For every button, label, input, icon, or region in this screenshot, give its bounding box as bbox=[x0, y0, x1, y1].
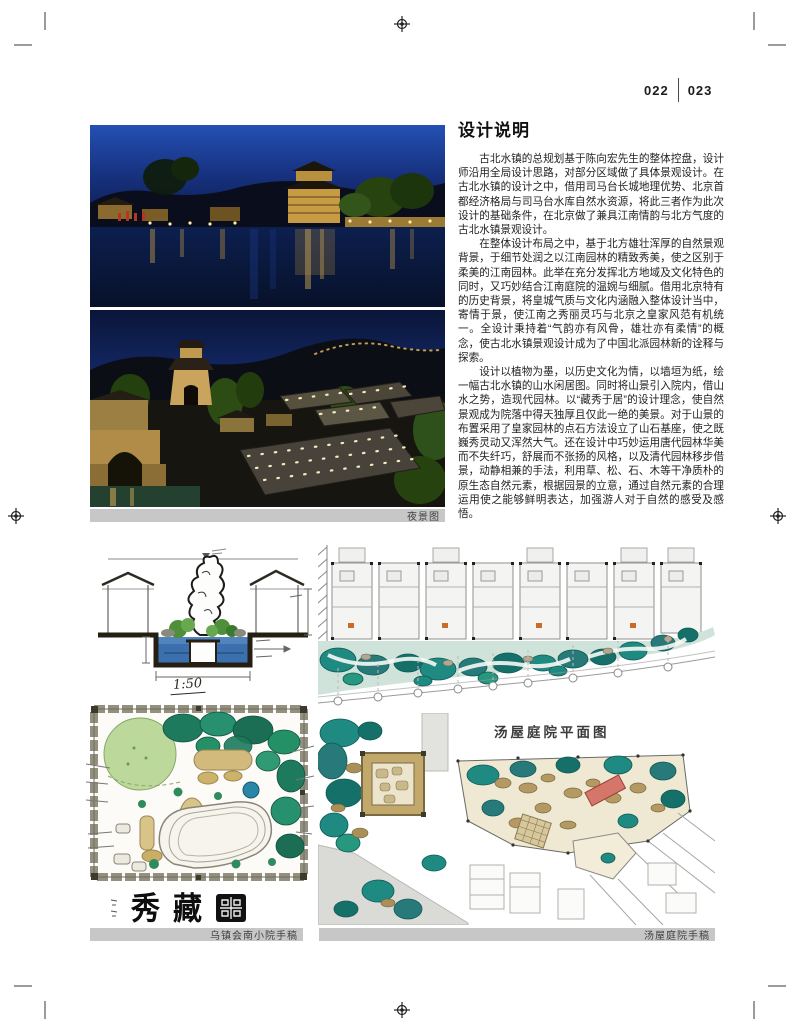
tang-plan-illustration bbox=[318, 713, 715, 925]
crop-mark bbox=[753, 1001, 755, 1019]
night-photo-canal bbox=[90, 125, 445, 307]
registration-mark-icon bbox=[394, 1002, 410, 1018]
page-number-divider bbox=[678, 78, 679, 102]
night-photo-aerial bbox=[90, 310, 445, 507]
page-number-left: 022 bbox=[644, 83, 669, 98]
signature-marks bbox=[110, 897, 118, 919]
section-scale-label: 1:50 bbox=[169, 676, 205, 695]
design-description-article: 设计说明 古北水镇的总规划基于陈向宏先生的整体控盘，设计师沿用全局设计思路，对部… bbox=[458, 116, 724, 521]
magazine-spread-page: 022 023 bbox=[0, 0, 800, 1031]
cad-buildings bbox=[470, 863, 696, 919]
seal-stamp-icon bbox=[215, 893, 247, 923]
crop-mark bbox=[14, 985, 32, 987]
calligraphy-char: 秀 bbox=[131, 892, 160, 923]
left-sketch-caption-bar: 乌镇会南小院手稿 bbox=[90, 928, 303, 941]
registration-mark-icon bbox=[8, 508, 24, 524]
calligraphy-block: 秀 藏 bbox=[110, 890, 247, 926]
crop-mark bbox=[44, 1001, 46, 1019]
left-sketch-caption-label: 乌镇会南小院手稿 bbox=[210, 927, 298, 942]
hatched-wall bbox=[318, 545, 327, 641]
building-units bbox=[331, 548, 702, 640]
page-numbers: 022 023 bbox=[644, 78, 712, 102]
photo-caption-bar: 夜景图 bbox=[90, 509, 445, 522]
right-pavilion bbox=[250, 571, 304, 635]
right-sketch-caption-bar: 汤屋庭院手稿 bbox=[319, 928, 715, 941]
night-aerial-illustration bbox=[90, 310, 445, 507]
crop-mark bbox=[753, 12, 755, 30]
site-plan-illustration bbox=[318, 545, 715, 708]
tang-plan-title: 汤屋庭院平面图 bbox=[494, 721, 610, 741]
left-pavilion bbox=[102, 573, 154, 635]
pavilion bbox=[360, 751, 426, 817]
small-pond bbox=[243, 782, 259, 798]
night-canal-illustration bbox=[90, 125, 445, 307]
rock-pedestal bbox=[190, 641, 216, 663]
article-paragraph-2: 在整体设计布局之中，基于北方雄壮浑厚的自然景观背景，于细节处润之以江南园林的精致… bbox=[458, 237, 724, 365]
photo-caption-label: 夜景图 bbox=[407, 508, 440, 523]
courtyard-section-sketch: 1:50 bbox=[94, 545, 312, 703]
calligraphy-char: 藏 bbox=[173, 892, 202, 923]
page-number-right: 023 bbox=[688, 83, 713, 98]
crop-mark bbox=[14, 44, 32, 46]
crop-mark bbox=[768, 985, 786, 987]
article-paragraph-1: 古北水镇的总规划基于陈向宏先生的整体控盘，设计师沿用全局设计思路，对部分区域做了… bbox=[458, 152, 724, 237]
registration-mark-icon bbox=[394, 16, 410, 32]
article-paragraph-3: 设计以植物为墨，以历史文化为情，以墙垣为纸，绘一幅古北水镇的山水闲居图。同时将山… bbox=[458, 365, 724, 521]
registration-mark-icon bbox=[770, 508, 786, 524]
tang-courtyard-plan-sketch: 汤屋庭院平面图 bbox=[318, 713, 715, 925]
crop-mark bbox=[768, 44, 786, 46]
site-plan-sketch bbox=[318, 545, 715, 708]
crop-mark bbox=[44, 12, 46, 30]
path-strip bbox=[422, 713, 448, 771]
article-title: 设计说明 bbox=[458, 116, 724, 141]
water-reflection bbox=[90, 486, 200, 507]
right-sketch-caption-label: 汤屋庭院手稿 bbox=[644, 927, 710, 942]
courtyard-plan-illustration bbox=[86, 704, 314, 888]
courtyard-plan-sketch bbox=[86, 704, 314, 888]
